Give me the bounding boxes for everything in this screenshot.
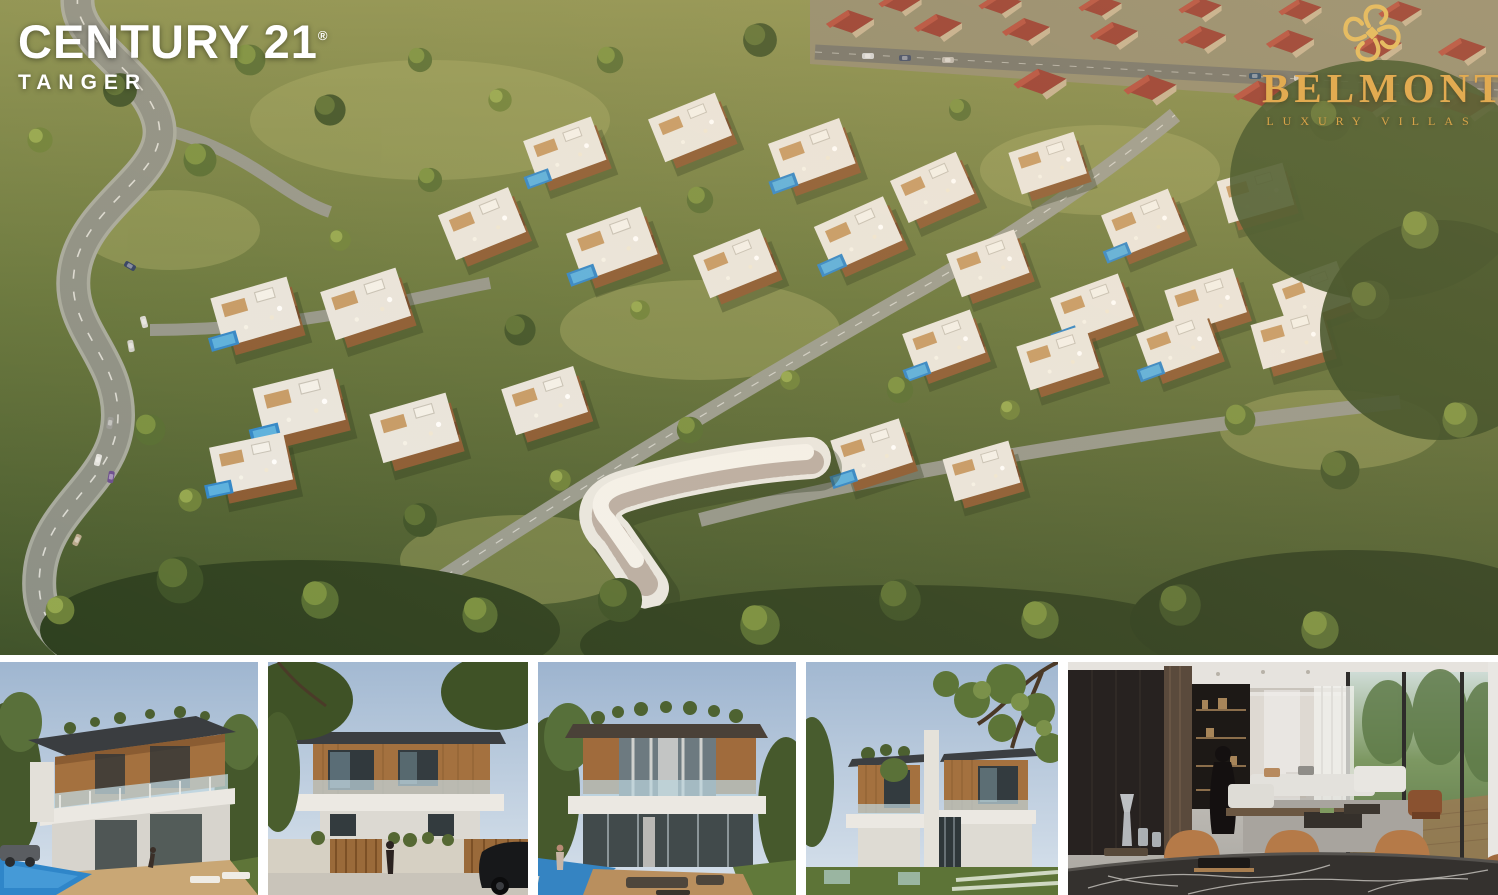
belmont-tagline: LUXURY VILLAS: [1262, 115, 1482, 127]
century21-logo: CENTURY 21® TANGER: [18, 18, 328, 93]
person-at-pool: [556, 845, 564, 870]
belmont-logo: BELMONT LUXURY VILLAS: [1262, 2, 1482, 127]
villa-entrance-scene: [806, 662, 1058, 895]
villa-exterior-pool-photo: [0, 662, 258, 895]
black-car: [479, 842, 528, 895]
villa-entrance-photo: [806, 662, 1058, 895]
registered-mark: ®: [318, 28, 328, 43]
villa-structure: [565, 701, 768, 867]
belmont-name: BELMONT: [1262, 68, 1482, 109]
century21-name: CENTURY 21: [18, 15, 318, 68]
belmont-floral-emblem-icon: [1339, 2, 1405, 64]
leather-armchair: [1408, 790, 1442, 819]
villa-garden-scene: [538, 662, 796, 895]
villa-facade-scene: [268, 662, 528, 895]
marketing-poster: CENTURY 21® TANGER BELMONT LUXURY VILLAS: [0, 0, 1498, 895]
villa-pool-scene: [0, 662, 258, 895]
interior-scene: [1068, 662, 1498, 895]
villa-garden-pool-photo: [538, 662, 796, 895]
book: [1198, 858, 1250, 868]
villa-street-facade-photo: [268, 662, 528, 895]
photo-gallery-strip: [0, 662, 1498, 895]
century21-office: TANGER: [18, 72, 328, 93]
villa-structure: [295, 732, 506, 839]
living-room-interior-photo: [1068, 662, 1498, 895]
hero-aerial-render: CENTURY 21® TANGER BELMONT LUXURY VILLAS: [0, 0, 1498, 655]
